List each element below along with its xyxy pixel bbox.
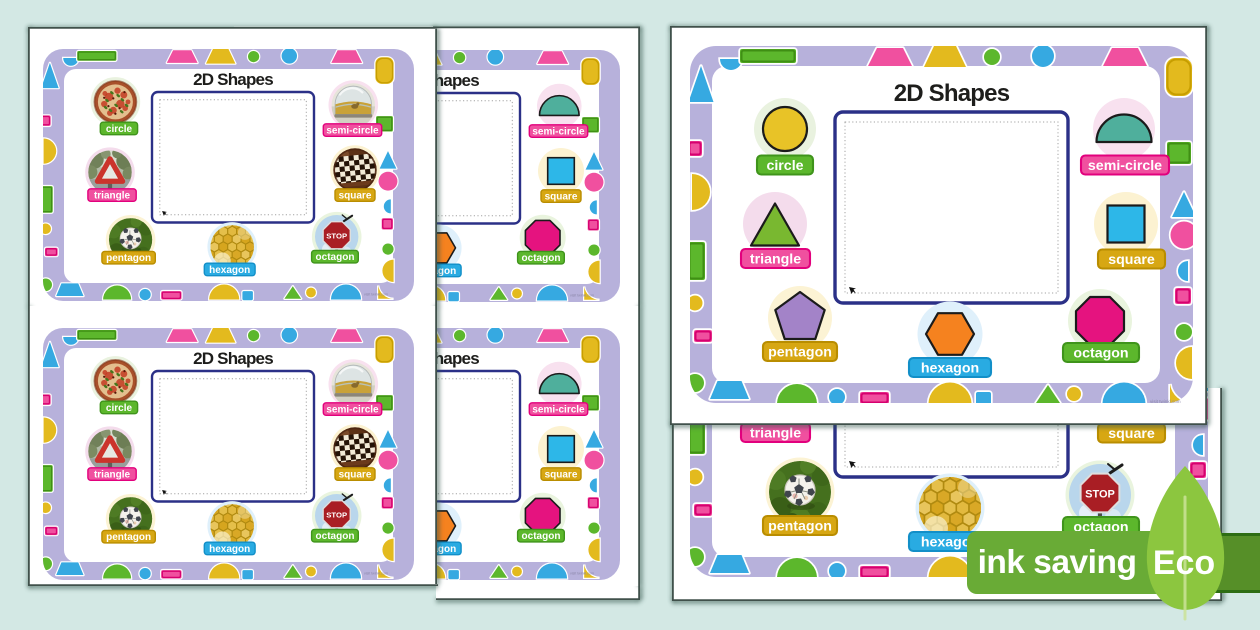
svg-text:triangle: triangle	[94, 469, 131, 480]
svg-text:square: square	[1108, 426, 1155, 442]
svg-text:2D Shapes: 2D Shapes	[193, 349, 273, 368]
svg-text:2D Shapes: 2D Shapes	[193, 70, 273, 89]
svg-text:visit twinkl.com: visit twinkl.com	[570, 294, 594, 298]
svg-text:semi-circle: semi-circle	[532, 126, 585, 137]
svg-text:circle: circle	[106, 403, 133, 414]
svg-text:square: square	[1108, 252, 1155, 268]
svg-text:octagon: octagon	[522, 531, 561, 542]
svg-text:square: square	[545, 469, 578, 480]
svg-text:visit twinkl.com: visit twinkl.com	[570, 572, 594, 576]
svg-text:STOP: STOP	[326, 231, 347, 240]
svg-text:semi-circle: semi-circle	[326, 125, 379, 136]
svg-text:hexagon: hexagon	[921, 360, 979, 376]
svg-text:ink saving: ink saving	[978, 544, 1137, 581]
svg-text:circle: circle	[106, 124, 133, 135]
svg-text:square: square	[545, 191, 578, 202]
svg-text:STOP: STOP	[1085, 488, 1115, 500]
svg-text:square: square	[339, 469, 372, 480]
svg-text:triangle: triangle	[94, 190, 131, 201]
svg-text:octagon: octagon	[522, 253, 561, 264]
svg-text:square: square	[339, 190, 372, 201]
svg-text:octagon: octagon	[316, 252, 355, 263]
svg-text:pentagon: pentagon	[768, 518, 832, 534]
svg-text:2D Shapes: 2D Shapes	[894, 80, 1010, 107]
svg-text:visit twinkl.com: visit twinkl.com	[1150, 399, 1181, 404]
svg-text:hexagon: hexagon	[209, 265, 250, 276]
svg-text:triangle: triangle	[750, 251, 801, 267]
svg-text:octagon: octagon	[316, 531, 355, 542]
svg-text:semi-circle: semi-circle	[326, 404, 379, 415]
svg-text:semi-circle: semi-circle	[1088, 158, 1162, 174]
svg-text:octagon: octagon	[1073, 345, 1128, 361]
svg-text:pentagon: pentagon	[106, 532, 151, 543]
svg-text:hexagon: hexagon	[209, 544, 250, 555]
svg-text:semi-circle: semi-circle	[532, 404, 585, 415]
svg-text:STOP: STOP	[326, 510, 347, 519]
svg-text:pentagon: pentagon	[768, 344, 832, 360]
svg-text:visit twinkl.com: visit twinkl.com	[364, 293, 388, 297]
svg-text:circle: circle	[766, 158, 803, 174]
svg-text:pentagon: pentagon	[106, 253, 151, 264]
svg-text:Eco: Eco	[1153, 544, 1215, 582]
svg-text:visit twinkl.com: visit twinkl.com	[364, 572, 388, 576]
